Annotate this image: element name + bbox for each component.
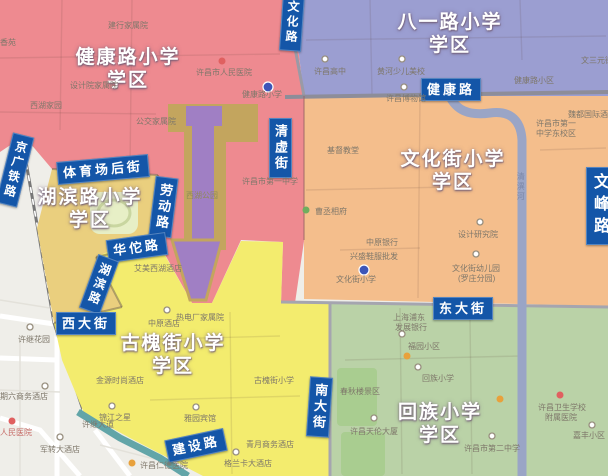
district-title-line2: 学区 (383, 171, 523, 194)
road-label-xi-street: 西大街 (56, 312, 116, 335)
district-title-line2: 学区 (380, 34, 520, 57)
poi-label: 格兰卡大酒店 (224, 459, 272, 468)
district-title-line1: 健康路小学 (58, 46, 198, 69)
poi-label: 基督教堂 (327, 146, 359, 155)
poi-label: 雅园宾馆 (184, 414, 216, 423)
poi-label: 春秋楼景区 (340, 387, 380, 396)
poi-label: (罗庄分园) (458, 274, 495, 283)
district-title-line1: 文化街小学 (383, 148, 523, 171)
poi-label: 军转大酒店 (40, 445, 80, 454)
district-title-wenhua-street: 文化街小学 学区 (383, 148, 523, 194)
poi-label: 上海浦东 (393, 313, 425, 322)
poi-label: 设计研究院 (458, 230, 498, 239)
poi-label: 热电厂家属院 (176, 313, 224, 322)
poi-label: 古槐街小学 (254, 376, 294, 385)
poi-label: 许昌天伦大厦 (350, 427, 398, 436)
poi-label: 许昌市第二中学 (464, 444, 520, 453)
district-title-line2: 学区 (103, 355, 243, 378)
wenhua-street-school-dot (359, 265, 369, 275)
poi-label: 公交家属院 (136, 117, 176, 126)
district-title-huizu: 回族小学 学区 (370, 401, 510, 447)
road-label-wenfeng-road: 文峰路 (586, 167, 608, 245)
poi-label: 健康路小区 (514, 76, 554, 85)
district-title-line1: 湖滨路小学 (20, 186, 160, 209)
poi-label: 曹丞相府 (315, 207, 347, 216)
poi-label: 金源时尚酒店 (96, 376, 144, 385)
poi-label: 福园小区 (408, 342, 440, 351)
school-district-map: 健康路小学 学区 八一路小学 学区 文化街小学 学区 湖滨路小学 学区 古槐街小… (0, 0, 608, 476)
district-title-hubin-road: 湖滨路小学 学区 (20, 186, 160, 232)
poi-label: 青月商务酒店 (246, 440, 294, 449)
poi-label: 丁香苑 (0, 38, 16, 47)
district-title-line1: 八一路小学 (380, 11, 520, 34)
poi-label: 中原银行 (366, 238, 398, 247)
poi-label: 中学东校区 (536, 129, 576, 138)
poi-label: 许继大道 (82, 420, 114, 429)
poi-label: 西湖家园 (30, 101, 62, 110)
poi-label: 回族小学 (422, 374, 454, 383)
park-name-label: 西湖公园 (186, 191, 218, 200)
poi-label: 兴盛鞋服批发 (350, 252, 398, 261)
poi-label: 文三元街 (581, 56, 608, 65)
poi-label: 黄河少儿美校 (377, 67, 425, 76)
poi-label: 许昌仁德医院 (140, 461, 188, 470)
road-label-dong-street: 东大街 (433, 297, 493, 320)
scenic-icons (303, 207, 310, 214)
road-label-wenhua-road: 文化路 (279, 0, 305, 52)
poi-label: 许昌市第一 (536, 119, 576, 128)
district-title-guhuai-street: 古槐街小学 学区 (103, 332, 243, 378)
poi-label: 许昌市人民医院 (196, 68, 252, 77)
poi-label: 健康路小学 (242, 90, 282, 99)
poi-label: 许昌市第一中学 (242, 177, 298, 186)
poi-label: 许昌博物馆 (386, 94, 426, 103)
poi-label: 文化街小学 (336, 275, 376, 284)
river-name-label: 清潩河 (516, 172, 525, 202)
poi-label-hospital: 人民医院 (0, 428, 32, 437)
poi-label: 建行家属院 (108, 21, 148, 30)
road-label-qingxu-street: 清虚街 (269, 118, 292, 178)
poi-label: 设计院家属院 (70, 81, 118, 90)
road-label-nan-street: 南大街 (306, 376, 333, 437)
poi-label: 许昌高中 (314, 67, 346, 76)
district-title-bayi-road: 八一路小学 学区 (380, 11, 520, 57)
poi-label: 许继花园 (18, 335, 50, 344)
poi-label: 艾美西湖酒店 (134, 264, 182, 273)
poi-label: 期六商务酒店 (0, 392, 48, 401)
district-title-line1: 回族小学 (370, 401, 510, 424)
poi-label: 文化街幼儿园 (452, 264, 500, 273)
poi-label: 附属医院 (545, 413, 577, 422)
poi-label: 魏都国际酒店 (568, 110, 608, 119)
district-title-line1: 古槐街小学 (103, 332, 243, 355)
poi-label: 许昌卫生学校 (538, 403, 586, 412)
road-label-jiankang-road: 健康路 (421, 78, 481, 101)
district-title-line2: 学区 (20, 209, 160, 232)
poi-label: 嘉丰小区 (573, 431, 605, 440)
poi-label: 发展银行 (395, 323, 427, 332)
